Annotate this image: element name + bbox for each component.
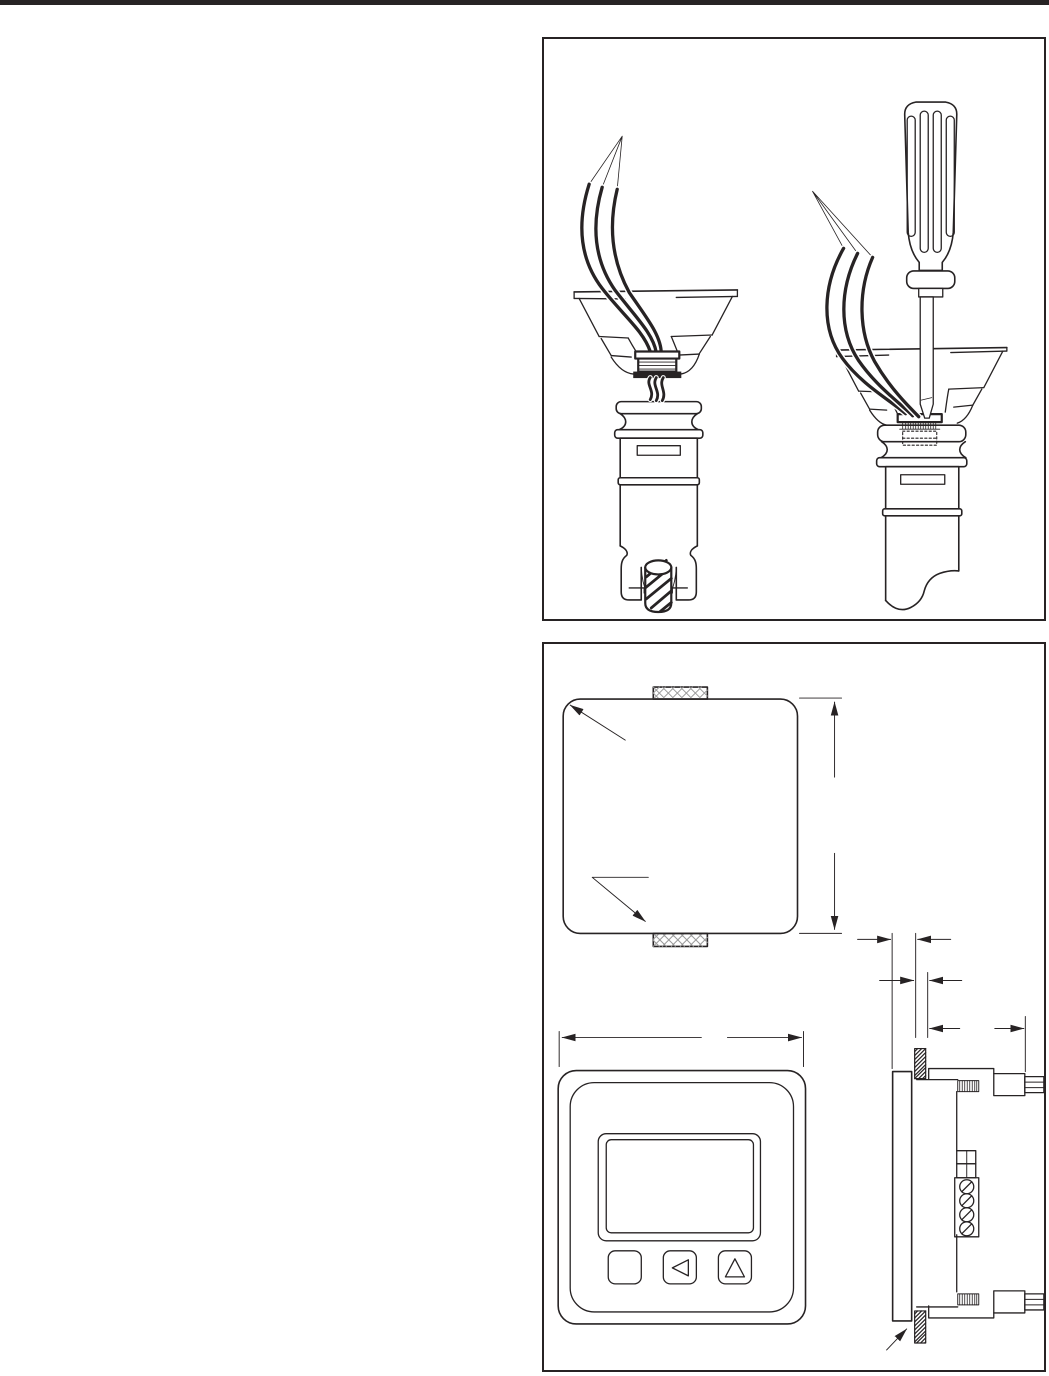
figure-mounting-dimensions: [542, 642, 1046, 1372]
screwdriver-collar: [907, 271, 955, 289]
clamp-screw-shaft: [1025, 1077, 1044, 1093]
wire-bundle: [827, 248, 919, 416]
probe-assembly-pressed: [813, 102, 1007, 609]
clamp-screw-block: [994, 1074, 1025, 1096]
figure-probe-wiring: [542, 37, 1046, 621]
mounting-tab-top: [653, 687, 707, 699]
screwdriver-handle: [905, 102, 957, 270]
left-triangle-icon: [672, 1260, 688, 1276]
wire-bundle: [582, 184, 661, 353]
bottom-clamp-bracket: [917, 1291, 1044, 1318]
panel-section-top: [915, 1049, 926, 1079]
tab-leader-arrow: [592, 877, 648, 921]
probe-wiring-drawing: [544, 39, 1044, 619]
front-view: [558, 1032, 805, 1324]
up-triangle-icon: [725, 1259, 744, 1277]
connector-block: [957, 1151, 976, 1178]
terminal-block: [955, 1178, 979, 1237]
rear-view: [563, 687, 841, 946]
clamp-screw-shaft: [1025, 1294, 1044, 1310]
probe-body: [877, 425, 967, 609]
display-frame: [598, 1134, 760, 1241]
page-top-rule: [0, 0, 1049, 5]
front-housing-outline: [558, 1071, 805, 1324]
panel-section-bottom: [915, 1311, 926, 1343]
anchor-screw: [645, 560, 671, 612]
height-dimension: [800, 698, 842, 933]
document-page: [0, 0, 1049, 1376]
probe-assembly-loose: [574, 136, 737, 612]
left-triangle-button: [663, 1251, 696, 1284]
probe-collar: [616, 402, 701, 414]
display-window: [606, 1140, 753, 1233]
bezel-side-profile: [893, 1072, 912, 1321]
gland-wire-tails: [649, 378, 664, 401]
up-triangle-button: [718, 1251, 751, 1284]
cable-gland: [633, 352, 681, 379]
blank-button: [608, 1251, 641, 1284]
screwdriver: [905, 102, 957, 418]
probe-body: [615, 402, 703, 612]
depth-dimensions: [858, 933, 1026, 1071]
panel-leader-arrow: [887, 1329, 907, 1350]
mounting-dimension-drawing: [544, 644, 1044, 1370]
clamp-screw-block: [994, 1291, 1025, 1313]
rear-housing-outline: [563, 699, 797, 933]
mounting-tab-bottom: [653, 933, 707, 946]
width-dimension: [559, 1032, 803, 1067]
side-view: [858, 933, 1044, 1350]
probe-collar: [878, 425, 966, 442]
top-clamp-bracket: [917, 1069, 1044, 1096]
stripped-wire-leads: [589, 136, 622, 189]
torn-break-edge: [886, 571, 959, 610]
corner-leader-arrow: [570, 705, 625, 740]
screwdriver-neck: [919, 288, 943, 297]
